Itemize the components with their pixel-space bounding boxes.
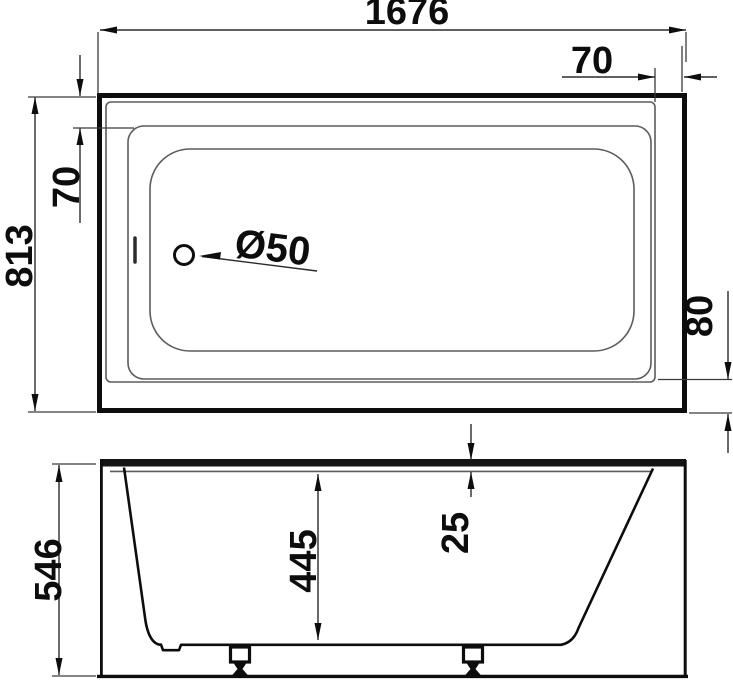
arrowhead-left bbox=[100, 27, 117, 34]
tub-rim-outline bbox=[106, 102, 655, 382]
leg-bracket bbox=[464, 647, 483, 662]
rim-thickness-label: 25 bbox=[435, 512, 477, 554]
tub-opening-outline bbox=[128, 126, 651, 379]
arrowhead-up bbox=[725, 414, 732, 431]
rim-width-top-label: 70 bbox=[46, 166, 88, 208]
arrowhead-down bbox=[77, 79, 84, 96]
dim-rim-top: 70 bbox=[46, 55, 134, 223]
basin-inner-profile bbox=[124, 468, 653, 651]
leg-bracket bbox=[231, 647, 250, 662]
arrowhead-up bbox=[468, 472, 475, 489]
leg-right bbox=[464, 647, 483, 677]
inner-depth-label: 445 bbox=[283, 529, 325, 592]
top-view: Ø50 bbox=[100, 96, 685, 411]
dim-rim-thickness: 25 bbox=[435, 424, 477, 554]
rim-width-bottom-label: 80 bbox=[679, 295, 721, 337]
leg-left bbox=[231, 647, 250, 677]
drain-leader-arrowhead bbox=[199, 252, 221, 260]
dim-rim-bottom: 80 bbox=[658, 291, 732, 453]
overall-height-label: 546 bbox=[28, 538, 70, 601]
rim-width-right-label: 70 bbox=[571, 40, 613, 82]
leg-foot bbox=[231, 662, 249, 677]
arrowhead-up bbox=[56, 465, 63, 482]
arrowhead-up bbox=[315, 474, 322, 491]
overall-length-label: 1676 bbox=[365, 0, 450, 33]
drawing-canvas: Ø50 1676 70 70 813 bbox=[0, 0, 733, 682]
arrowhead-right bbox=[669, 27, 686, 34]
arrowhead-up bbox=[77, 128, 84, 145]
drain-circle bbox=[175, 246, 194, 265]
arrowhead-down bbox=[315, 623, 322, 640]
arrowhead-down bbox=[468, 443, 475, 460]
leg-foot bbox=[464, 662, 482, 677]
arrowhead-up bbox=[32, 97, 39, 114]
arrowhead-right bbox=[638, 74, 655, 81]
arrowhead-down bbox=[725, 362, 732, 379]
rim-deck-edge bbox=[100, 459, 686, 467]
arrowhead-down bbox=[56, 658, 63, 675]
front-view bbox=[97, 459, 688, 677]
tub-basin-outline bbox=[150, 149, 634, 351]
arrowhead-down bbox=[32, 394, 39, 411]
dim-overall-height: 546 bbox=[28, 464, 96, 676]
technical-drawing: Ø50 1676 70 70 813 bbox=[0, 0, 733, 682]
dim-rim-right: 70 bbox=[562, 40, 717, 102]
drain-diameter-label: Ø50 bbox=[232, 222, 312, 275]
arrowhead-left bbox=[684, 74, 701, 81]
overall-width-label: 813 bbox=[0, 224, 41, 287]
dim-inner-depth: 445 bbox=[283, 474, 325, 640]
